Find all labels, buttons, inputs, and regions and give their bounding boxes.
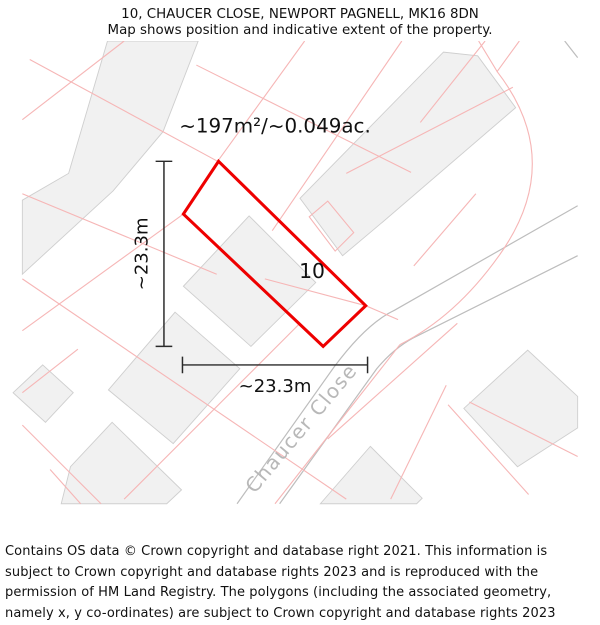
property-map-page: 10, CHAUCER CLOSE, NEWPORT PAGNELL, MK16… bbox=[0, 0, 600, 625]
map-svg: ~197m²/~0.049ac. 10 ~23.3m ~23.3m Chauce… bbox=[0, 41, 600, 538]
building-bottom-center bbox=[320, 446, 422, 503]
page-header: 10, CHAUCER CLOSE, NEWPORT PAGNELL, MK16… bbox=[0, 0, 600, 41]
building-southwest bbox=[108, 312, 239, 443]
road-corner-top-right bbox=[565, 41, 578, 58]
map-description: Map shows position and indicative extent… bbox=[0, 23, 600, 39]
property-address: 10, CHAUCER CLOSE, NEWPORT PAGNELL, MK16… bbox=[0, 6, 600, 23]
building-terrace-top-right bbox=[300, 52, 516, 256]
building-right bbox=[464, 350, 578, 467]
area-label: ~197m²/~0.049ac. bbox=[179, 115, 371, 138]
width-dimension-label: ~23.3m bbox=[239, 376, 312, 397]
copyright-notice: Contains OS data © Crown copyright and d… bbox=[0, 538, 600, 625]
height-dimension-label: ~23.3m bbox=[131, 217, 152, 290]
building-left-small bbox=[13, 365, 73, 422]
plot-number-label: 10 bbox=[299, 259, 325, 283]
map-canvas: ~197m²/~0.049ac. 10 ~23.3m ~23.3m Chauce… bbox=[0, 41, 600, 538]
building-band-top-left bbox=[22, 41, 198, 274]
